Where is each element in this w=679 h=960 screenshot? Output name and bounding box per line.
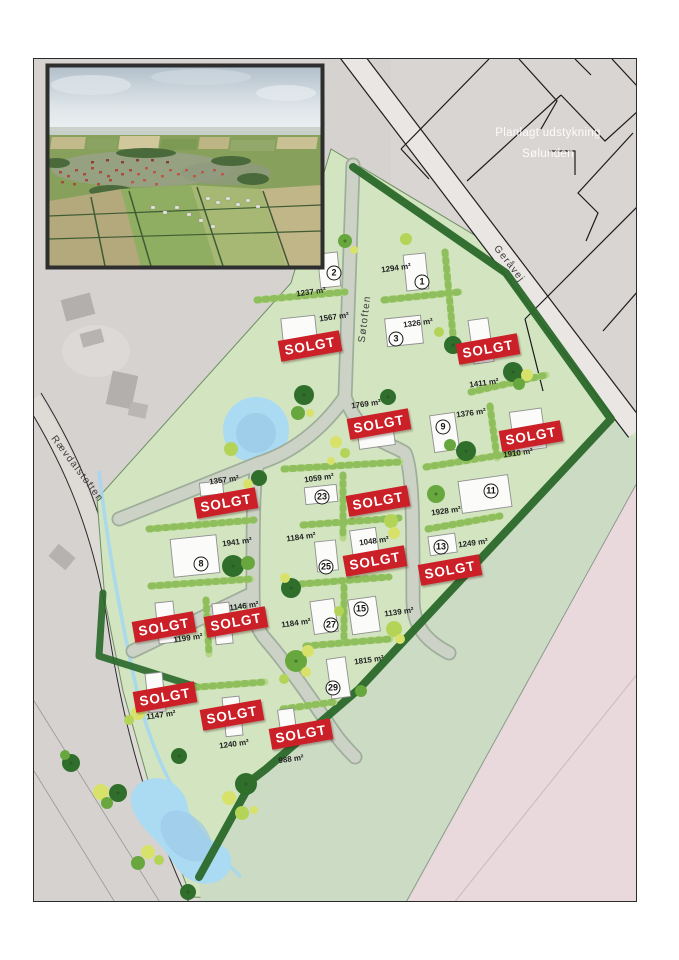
street-label: Rævdalstoften: [49, 434, 106, 505]
plot-area-label: 1059 m²: [304, 471, 335, 484]
plot-area-label: 988 m²: [278, 753, 304, 765]
plot-number-badge: 9: [436, 420, 451, 435]
plot-number-badge: 25: [319, 560, 334, 575]
region-title-line2: Sølunden: [495, 144, 600, 165]
solgt-banner: SOLGT: [269, 718, 334, 749]
region-title: Planlagt udstykning Sølunden: [495, 123, 600, 165]
plot-area-label: 1769 m²: [351, 397, 382, 410]
street-label: Søtoften: [357, 295, 374, 343]
solgt-banner: SOLGT: [194, 487, 259, 518]
solgt-banner: SOLGT: [204, 606, 269, 637]
plot-area-label: 1237 m²: [296, 285, 327, 298]
plot-area-label: 1294 m²: [381, 261, 412, 274]
solgt-banner: SOLGT: [456, 333, 521, 364]
solgt-banner: SOLGT: [278, 330, 343, 361]
plot-area-label: 1240 m²: [219, 737, 250, 750]
solgt-banner: SOLGT: [418, 554, 483, 585]
map-overlays: Planlagt udstykning Sølunden 1294 m²1123…: [34, 59, 636, 901]
plot-area-label: 1411 m²: [469, 377, 499, 390]
plot-number-badge: 23: [315, 490, 330, 505]
plot-area-label: 1048 m²: [359, 534, 390, 547]
plot-number-badge: 1: [415, 275, 430, 290]
plot-number-badge: 11: [484, 484, 499, 499]
plot-number-badge: 2: [327, 266, 342, 281]
plot-area-label: 1941 m²: [222, 535, 253, 548]
plot-number-badge: 3: [389, 332, 404, 347]
plot-number-badge: 29: [326, 681, 341, 696]
site-plan-map: Planlagt udstykning Sølunden 1294 m²1123…: [33, 58, 637, 902]
plot-number-badge: 8: [194, 557, 209, 572]
plot-area-label: 1928 m²: [431, 504, 462, 517]
plot-area-label: 1357 m²: [209, 473, 240, 486]
plot-number-badge: 15: [354, 602, 369, 617]
plot-area-label: 1567 m²: [319, 310, 350, 323]
plot-number-badge: 27: [324, 618, 339, 633]
page: { "map": { "title": {"line1": "Planlagt …: [0, 0, 679, 960]
plot-area-label: 1326 m²: [403, 316, 434, 329]
plot-area-label: 1184 m²: [281, 617, 311, 630]
solgt-banner: SOLGT: [343, 545, 408, 576]
street-label: Geråvej: [491, 244, 526, 285]
plot-area-label: 1249 m²: [458, 536, 489, 549]
solgt-banner: SOLGT: [346, 485, 411, 516]
solgt-banner: SOLGT: [200, 699, 265, 730]
region-title-line1: Planlagt udstykning: [495, 123, 600, 144]
solgt-banner: SOLGT: [347, 408, 412, 439]
plot-area-label: 1376 m²: [456, 406, 487, 419]
plot-area-label: 1815 m²: [354, 653, 385, 666]
plot-number-badge: 13: [434, 540, 449, 555]
plot-area-label: 1139 m²: [384, 606, 414, 619]
plot-area-label: 1184 m²: [286, 531, 316, 544]
solgt-banner: SOLGT: [133, 681, 198, 712]
plot-area-label: 1147 m²: [146, 709, 176, 722]
